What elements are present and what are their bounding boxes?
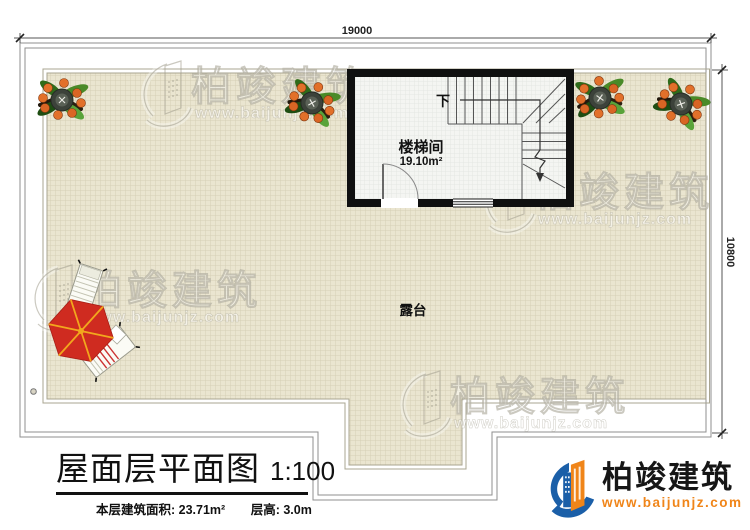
logo-url: www.baijunjz.com <box>602 495 743 510</box>
floor-area-text: 本层建筑面积: 23.71m² <box>96 503 225 517</box>
drawing-title: 屋面层平面图 <box>56 442 260 490</box>
stair-down-label: 下 <box>436 93 450 109</box>
svg-text:柏竣建筑: 柏竣建筑 <box>82 269 262 313</box>
stair-room: 下 楼梯间 19.10m² <box>347 69 574 208</box>
logo-name: 柏竣建筑 <box>602 462 734 495</box>
logo-icon <box>540 451 598 521</box>
drawing-scale: 1:100 <box>270 456 335 487</box>
svg-text:www.baijunjz.com: www.baijunjz.com <box>537 211 692 228</box>
window <box>453 199 493 208</box>
svg-text:19000: 19000 <box>342 25 373 37</box>
stair-room-area: 19.10m² <box>400 156 443 168</box>
dimension-top: 19000 <box>14 25 717 43</box>
svg-text:柏竣建筑: 柏竣建筑 <box>191 65 371 109</box>
stair-room-label: 楼梯间 <box>398 138 443 156</box>
svg-text:10800: 10800 <box>724 237 736 268</box>
floor-drain-icon <box>31 389 37 395</box>
floorplan-sheet: 柏竣建筑 www.baijunjz.com 柏竣建筑 www.baijunjz.… <box>0 0 750 530</box>
floor-height-text: 层高: 3.0m <box>251 503 312 517</box>
svg-text:www.baijunjz.com: www.baijunjz.com <box>453 415 608 432</box>
dimension-right: 10800 <box>712 64 736 439</box>
title-block: 屋面层平面图 1:100 本层建筑面积: 23.71m² 层高: 3.0m <box>56 442 386 518</box>
company-logo: 柏竣建筑 www.baijunjz.com <box>540 447 748 525</box>
svg-text:柏竣建筑: 柏竣建筑 <box>450 375 630 419</box>
terrace-label: 露台 <box>400 302 427 318</box>
